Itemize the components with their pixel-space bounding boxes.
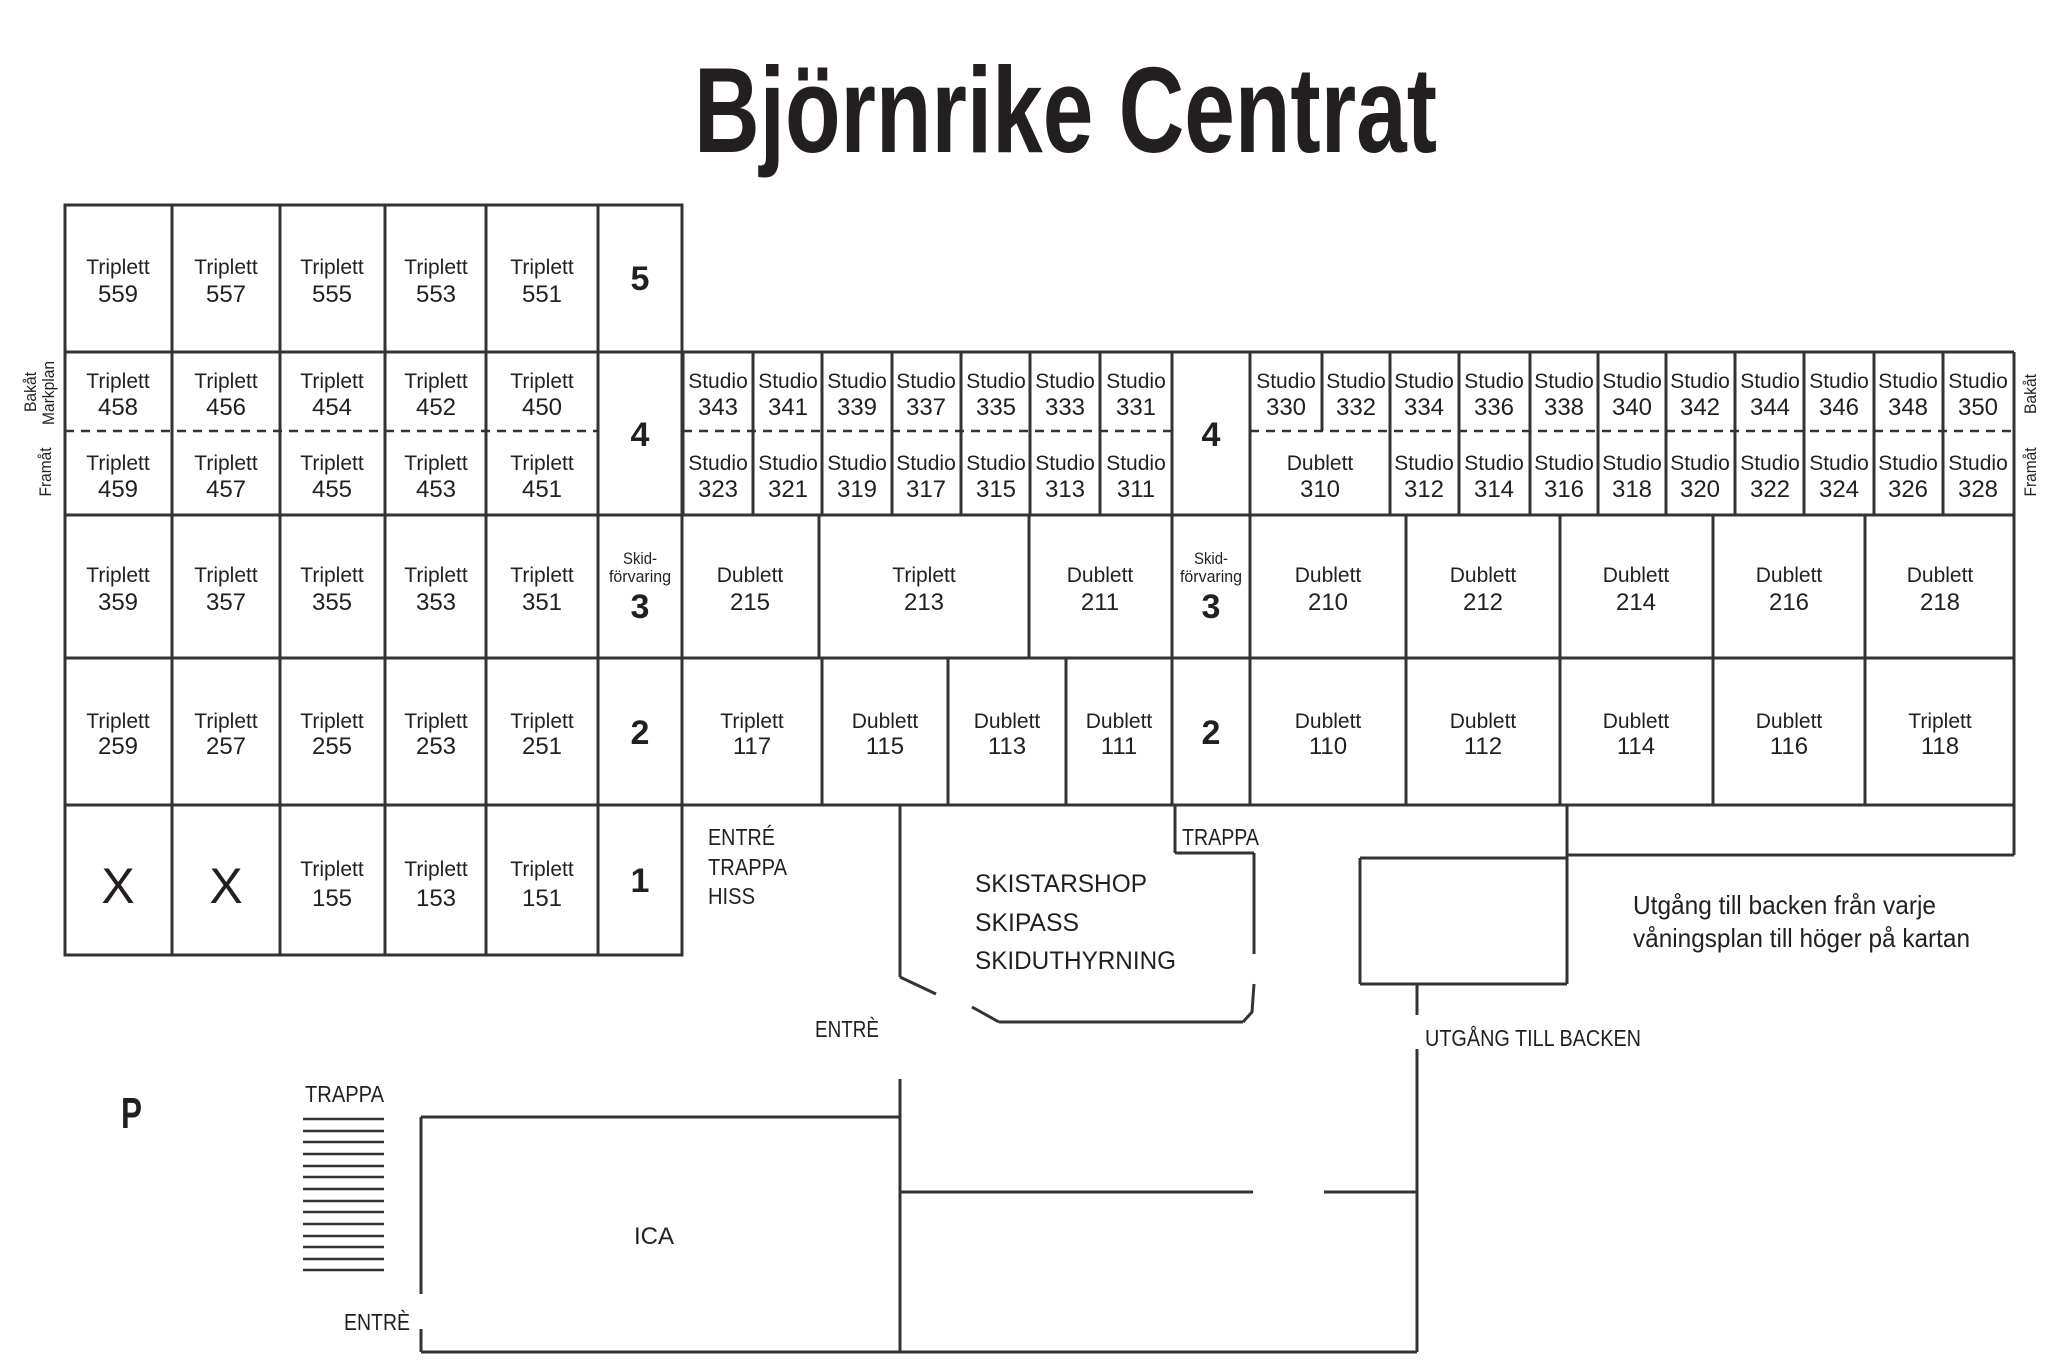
- svg-text:359: 359: [98, 589, 138, 616]
- svg-text:Triplett: Triplett: [510, 370, 574, 393]
- svg-text:458: 458: [98, 394, 138, 421]
- svg-text:315: 315: [976, 476, 1016, 503]
- svg-text:Triplett: Triplett: [720, 710, 784, 733]
- svg-text:215: 215: [730, 589, 770, 616]
- svg-text:310: 310: [1300, 476, 1340, 503]
- svg-text:318: 318: [1612, 476, 1652, 503]
- svg-text:340: 340: [1612, 394, 1652, 421]
- svg-text:Triplett: Triplett: [404, 564, 468, 587]
- svg-text:114: 114: [1617, 733, 1655, 760]
- svg-text:4: 4: [1202, 416, 1221, 454]
- svg-text:455: 455: [312, 476, 352, 503]
- svg-text:3: 3: [1202, 588, 1221, 626]
- svg-text:Triplett: Triplett: [194, 564, 258, 587]
- svg-text:357: 357: [206, 589, 246, 616]
- svg-text:457: 457: [206, 476, 246, 503]
- svg-text:322: 322: [1750, 476, 1790, 503]
- svg-text:Studio: Studio: [1106, 370, 1166, 393]
- svg-text:Dublett: Dublett: [1450, 564, 1517, 587]
- svg-text:332: 332: [1336, 394, 1376, 421]
- svg-text:314: 314: [1474, 476, 1514, 503]
- svg-text:330: 330: [1266, 394, 1306, 421]
- svg-text:Studio: Studio: [1809, 370, 1869, 393]
- svg-text:Studio: Studio: [1670, 452, 1730, 475]
- svg-text:Studio: Studio: [1256, 370, 1316, 393]
- svg-text:Triplett: Triplett: [300, 564, 364, 587]
- svg-text:Triplett: Triplett: [404, 256, 468, 279]
- svg-text:Dublett: Dublett: [1295, 564, 1362, 587]
- svg-text:331: 331: [1116, 394, 1156, 421]
- svg-text:Studio: Studio: [688, 452, 748, 475]
- svg-text:218: 218: [1920, 589, 1960, 616]
- svg-text:155: 155: [312, 885, 352, 912]
- svg-text:Dublett: Dublett: [717, 564, 784, 587]
- svg-text:Studio: Studio: [1948, 370, 2008, 393]
- svg-text:2: 2: [1202, 714, 1221, 752]
- svg-text:320: 320: [1680, 476, 1720, 503]
- svg-text:5: 5: [631, 260, 650, 298]
- svg-text:Triplett: Triplett: [404, 452, 468, 475]
- svg-text:450: 450: [522, 394, 562, 421]
- svg-text:HISS: HISS: [708, 883, 755, 909]
- svg-text:Dublett: Dublett: [1756, 564, 1823, 587]
- svg-text:110: 110: [1309, 733, 1347, 760]
- svg-text:459: 459: [98, 476, 138, 503]
- svg-text:Studio: Studio: [827, 452, 887, 475]
- svg-text:115: 115: [866, 733, 904, 760]
- svg-text:Triplett: Triplett: [404, 710, 468, 733]
- svg-text:ENTRÈ: ENTRÈ: [344, 1309, 410, 1335]
- svg-text:Studio: Studio: [966, 452, 1026, 475]
- svg-text:Dublett: Dublett: [1086, 710, 1153, 733]
- svg-text:555: 555: [312, 281, 352, 308]
- svg-text:335: 335: [976, 394, 1016, 421]
- svg-text:117: 117: [733, 733, 771, 760]
- svg-text:312: 312: [1404, 476, 1444, 503]
- svg-text:553: 553: [416, 281, 456, 308]
- svg-text:212: 212: [1463, 589, 1503, 616]
- svg-text:Triplett: Triplett: [86, 370, 150, 393]
- svg-text:Triplett: Triplett: [510, 256, 574, 279]
- svg-text:Studio: Studio: [966, 370, 1026, 393]
- svg-text:113: 113: [988, 733, 1026, 760]
- svg-text:Bakåt: Bakåt: [2021, 374, 2040, 414]
- svg-text:118: 118: [1921, 733, 1959, 760]
- svg-text:253: 253: [416, 733, 456, 760]
- svg-text:344: 344: [1750, 394, 1790, 421]
- svg-text:353: 353: [416, 589, 456, 616]
- svg-text:Studio: Studio: [1740, 452, 1800, 475]
- svg-text:Skid-: Skid-: [1194, 549, 1228, 568]
- svg-text:Triplett: Triplett: [510, 858, 574, 881]
- svg-text:TRAPPA: TRAPPA: [1182, 824, 1260, 850]
- svg-text:Studio: Studio: [758, 370, 818, 393]
- svg-text:SKIPASS: SKIPASS: [975, 909, 1079, 937]
- svg-text:Dublett: Dublett: [1295, 710, 1362, 733]
- svg-text:förvaring: förvaring: [609, 567, 671, 586]
- svg-text:451: 451: [522, 476, 562, 503]
- svg-text:Triplett: Triplett: [510, 452, 574, 475]
- svg-text:Triplett: Triplett: [86, 710, 150, 733]
- svg-text:förvaring: förvaring: [1180, 567, 1242, 586]
- svg-text:Studio: Studio: [1106, 452, 1166, 475]
- svg-text:ENTRÉ: ENTRÉ: [708, 824, 775, 850]
- svg-text:337: 337: [906, 394, 946, 421]
- svg-text:Triplett: Triplett: [194, 452, 258, 475]
- svg-text:350: 350: [1958, 394, 1998, 421]
- svg-text:Triplett: Triplett: [300, 370, 364, 393]
- svg-text:Triplett: Triplett: [510, 710, 574, 733]
- svg-text:Utgång till backen från varje: Utgång till backen från varje: [1633, 890, 1936, 920]
- svg-text:Studio: Studio: [758, 452, 818, 475]
- svg-text:Triplett: Triplett: [194, 370, 258, 393]
- svg-text:Studio: Studio: [1670, 370, 1730, 393]
- svg-text:Dublett: Dublett: [852, 710, 919, 733]
- svg-text:Studio: Studio: [688, 370, 748, 393]
- svg-text:Triplett: Triplett: [892, 564, 956, 587]
- svg-text:551: 551: [522, 281, 562, 308]
- svg-text:333: 333: [1045, 394, 1085, 421]
- svg-text:216: 216: [1769, 589, 1809, 616]
- svg-text:Studio: Studio: [827, 370, 887, 393]
- svg-text:Triplett: Triplett: [510, 564, 574, 587]
- svg-text:Studio: Studio: [896, 452, 956, 475]
- svg-text:213: 213: [904, 589, 944, 616]
- svg-text:452: 452: [416, 394, 456, 421]
- svg-text:4: 4: [631, 416, 650, 454]
- svg-text:338: 338: [1544, 394, 1584, 421]
- svg-text:316: 316: [1544, 476, 1584, 503]
- svg-text:UTGÅNG TILL BACKEN: UTGÅNG TILL BACKEN: [1425, 1024, 1641, 1051]
- svg-text:317: 317: [906, 476, 946, 503]
- svg-text:324: 324: [1819, 476, 1859, 503]
- svg-text:Triplett: Triplett: [404, 858, 468, 881]
- svg-text:Studio: Studio: [1602, 370, 1662, 393]
- svg-text:211: 211: [1081, 589, 1119, 616]
- svg-text:323: 323: [698, 476, 738, 503]
- svg-text:våningsplan till höger på kart: våningsplan till höger på kartan: [1633, 923, 1970, 953]
- svg-text:Björnrike Centrat: Björnrike Centrat: [694, 42, 1437, 178]
- svg-text:557: 557: [206, 281, 246, 308]
- svg-text:Framåt: Framåt: [36, 447, 55, 496]
- svg-text:Skid-: Skid-: [623, 549, 657, 568]
- svg-text:Triplett: Triplett: [86, 564, 150, 587]
- svg-text:Studio: Studio: [1534, 452, 1594, 475]
- svg-text:Framåt: Framåt: [2021, 447, 2040, 496]
- svg-text:453: 453: [416, 476, 456, 503]
- svg-text:210: 210: [1308, 589, 1348, 616]
- svg-text:Studio: Studio: [1809, 452, 1869, 475]
- svg-text:Studio: Studio: [896, 370, 956, 393]
- svg-text:326: 326: [1888, 476, 1928, 503]
- svg-text:328: 328: [1958, 476, 1998, 503]
- svg-text:3: 3: [631, 588, 650, 626]
- svg-text:313: 313: [1045, 476, 1085, 503]
- svg-text:321: 321: [768, 476, 808, 503]
- svg-text:Triplett: Triplett: [300, 710, 364, 733]
- svg-text:Dublett: Dublett: [1603, 564, 1670, 587]
- svg-text:TRAPPA: TRAPPA: [305, 1081, 385, 1107]
- svg-text:P: P: [121, 1089, 142, 1138]
- svg-text:334: 334: [1404, 394, 1444, 421]
- svg-text:SKISTARSHOP: SKISTARSHOP: [975, 870, 1147, 898]
- svg-text:214: 214: [1616, 589, 1656, 616]
- svg-text:343: 343: [698, 394, 738, 421]
- svg-text:153: 153: [416, 885, 456, 912]
- svg-text:ENTRÈ: ENTRÈ: [815, 1016, 879, 1042]
- svg-text:348: 348: [1888, 394, 1928, 421]
- svg-text:Dublett: Dublett: [1756, 710, 1823, 733]
- svg-text:151: 151: [522, 885, 562, 912]
- svg-text:351: 351: [522, 589, 562, 616]
- svg-text:Studio: Studio: [1602, 452, 1662, 475]
- svg-text:257: 257: [206, 733, 246, 760]
- svg-text:X: X: [101, 858, 134, 914]
- svg-text:Studio: Studio: [1878, 452, 1938, 475]
- svg-text:SKIDUTHYRNING: SKIDUTHYRNING: [975, 947, 1176, 975]
- svg-text:112: 112: [1464, 733, 1502, 760]
- svg-text:251: 251: [522, 733, 562, 760]
- svg-text:Dublett: Dublett: [1287, 452, 1354, 475]
- svg-text:Triplett: Triplett: [194, 710, 258, 733]
- svg-text:255: 255: [312, 733, 352, 760]
- svg-text:Studio: Studio: [1740, 370, 1800, 393]
- svg-text:336: 336: [1474, 394, 1514, 421]
- svg-text:TRAPPA: TRAPPA: [708, 854, 788, 880]
- svg-text:311: 311: [1117, 476, 1155, 503]
- svg-text:Studio: Studio: [1035, 452, 1095, 475]
- svg-text:Studio: Studio: [1464, 370, 1524, 393]
- svg-text:ICA: ICA: [634, 1223, 674, 1250]
- svg-text:Dublett: Dublett: [1450, 710, 1517, 733]
- svg-text:355: 355: [312, 589, 352, 616]
- svg-text:454: 454: [312, 394, 352, 421]
- svg-text:341: 341: [768, 394, 808, 421]
- svg-text:Triplett: Triplett: [300, 858, 364, 881]
- svg-text:346: 346: [1819, 394, 1859, 421]
- svg-text:Triplett: Triplett: [1908, 710, 1972, 733]
- svg-text:Dublett: Dublett: [974, 710, 1041, 733]
- svg-text:2: 2: [631, 714, 650, 752]
- svg-text:339: 339: [837, 394, 877, 421]
- svg-text:Triplett: Triplett: [86, 256, 150, 279]
- svg-text:Studio: Studio: [1534, 370, 1594, 393]
- svg-text:Studio: Studio: [1326, 370, 1386, 393]
- svg-text:116: 116: [1770, 733, 1808, 760]
- svg-text:Triplett: Triplett: [300, 452, 364, 475]
- svg-text:319: 319: [837, 476, 877, 503]
- svg-text:Markplan: Markplan: [39, 361, 58, 425]
- svg-text:1: 1: [631, 862, 650, 900]
- svg-text:Studio: Studio: [1035, 370, 1095, 393]
- svg-text:Studio: Studio: [1878, 370, 1938, 393]
- svg-text:Dublett: Dublett: [1067, 564, 1134, 587]
- svg-text:342: 342: [1680, 394, 1720, 421]
- svg-text:Bakåt: Bakåt: [21, 372, 40, 412]
- svg-text:456: 456: [206, 394, 246, 421]
- svg-text:X: X: [209, 858, 242, 914]
- svg-text:Studio: Studio: [1394, 452, 1454, 475]
- svg-text:Triplett: Triplett: [194, 256, 258, 279]
- svg-text:Studio: Studio: [1394, 370, 1454, 393]
- svg-text:Dublett: Dublett: [1603, 710, 1670, 733]
- svg-text:Triplett: Triplett: [404, 370, 468, 393]
- svg-text:Studio: Studio: [1464, 452, 1524, 475]
- svg-text:Triplett: Triplett: [86, 452, 150, 475]
- svg-text:259: 259: [98, 733, 138, 760]
- svg-text:559: 559: [98, 281, 138, 308]
- svg-text:111: 111: [1101, 733, 1137, 760]
- svg-text:Triplett: Triplett: [300, 256, 364, 279]
- svg-text:Dublett: Dublett: [1907, 564, 1974, 587]
- svg-text:Studio: Studio: [1948, 452, 2008, 475]
